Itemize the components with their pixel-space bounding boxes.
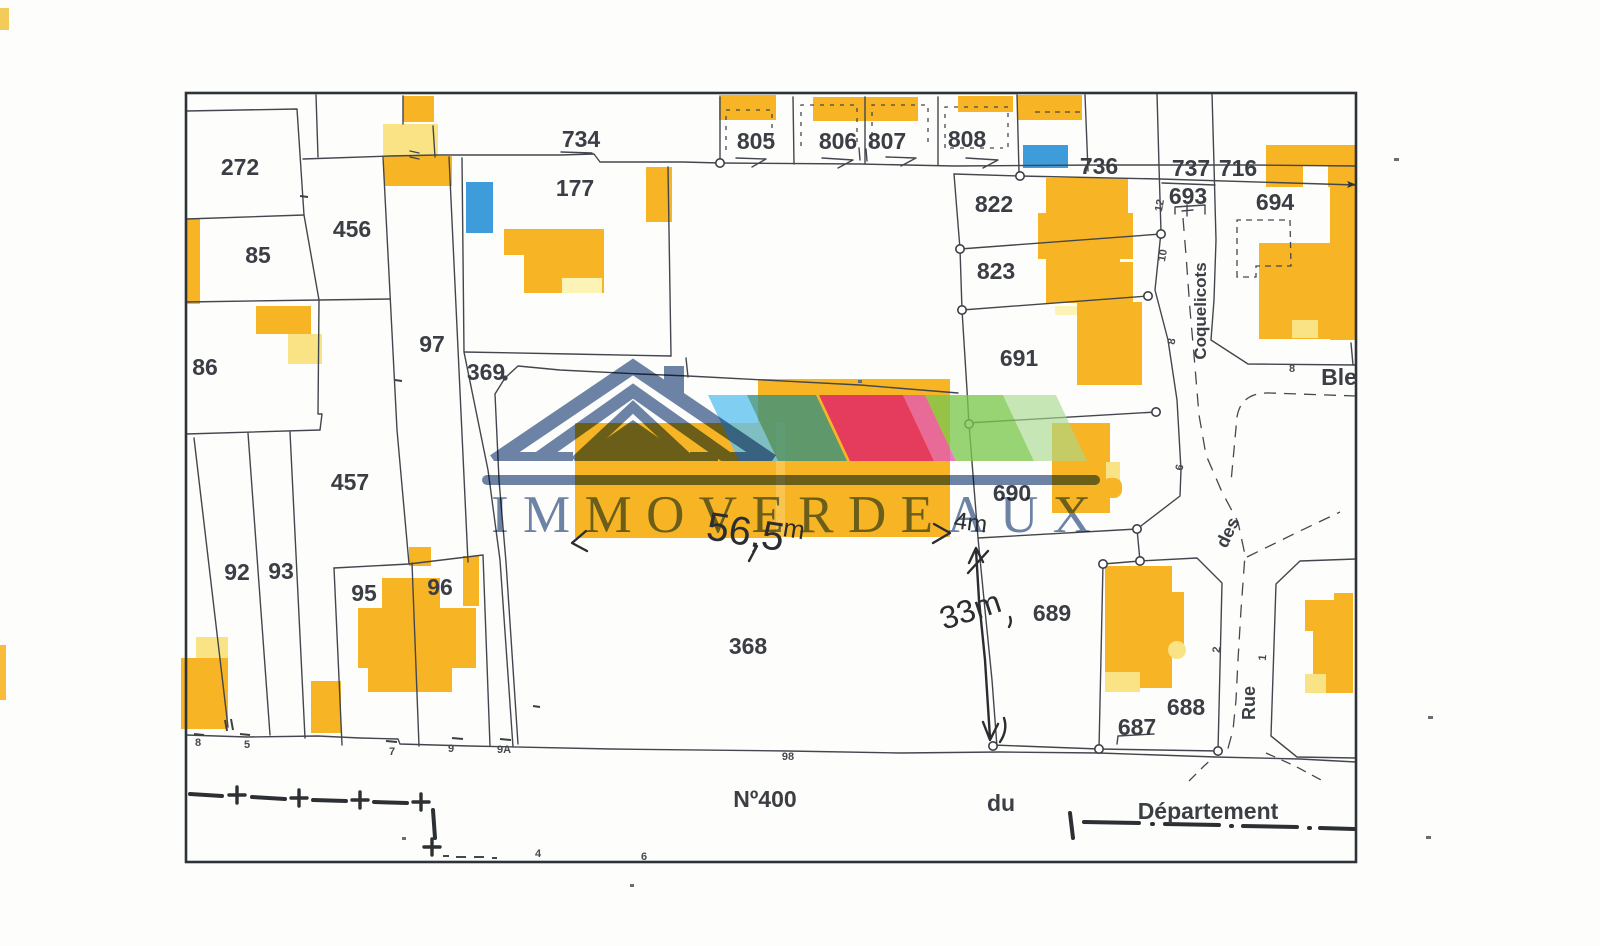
- svg-text:368: 368: [729, 633, 768, 659]
- svg-text:689: 689: [1033, 600, 1071, 626]
- svg-text:86: 86: [192, 354, 218, 380]
- svg-text:691: 691: [1000, 345, 1039, 371]
- svg-text:93: 93: [268, 558, 294, 584]
- svg-text:805: 805: [737, 128, 776, 154]
- svg-text:85: 85: [245, 242, 271, 268]
- svg-text:Coquelicots: Coquelicots: [1191, 262, 1210, 359]
- svg-text:96: 96: [427, 574, 453, 600]
- svg-text:5: 5: [244, 739, 250, 751]
- svg-text:716: 716: [1219, 155, 1257, 181]
- svg-text:4: 4: [535, 848, 542, 860]
- svg-text:Nº400: Nº400: [733, 786, 796, 812]
- svg-text:822: 822: [975, 191, 1013, 217]
- svg-text:688: 688: [1167, 694, 1206, 720]
- svg-text:734: 734: [562, 126, 601, 152]
- svg-text:Rue: Rue: [1239, 686, 1259, 720]
- svg-text:457: 457: [331, 469, 369, 495]
- svg-text:808: 808: [948, 126, 987, 152]
- svg-text:92: 92: [224, 559, 250, 585]
- svg-text:Département: Département: [1138, 798, 1279, 824]
- svg-text:m: m: [781, 512, 807, 545]
- svg-text:Ble: Ble: [1321, 364, 1357, 390]
- svg-text:98: 98: [782, 751, 794, 763]
- svg-text:369: 369: [467, 359, 505, 385]
- svg-text:9A: 9A: [497, 744, 511, 756]
- svg-text:694: 694: [1256, 189, 1295, 215]
- svg-text:8: 8: [1289, 363, 1295, 375]
- svg-text:2: 2: [1211, 646, 1223, 653]
- svg-text:1: 1: [1257, 654, 1269, 661]
- svg-text:806: 806: [819, 128, 857, 154]
- svg-text:687: 687: [1118, 714, 1156, 740]
- svg-text:10: 10: [1156, 248, 1170, 262]
- svg-text:95: 95: [351, 580, 377, 606]
- svg-text:823: 823: [977, 258, 1015, 284]
- svg-text:4m: 4m: [952, 507, 989, 538]
- svg-text:177: 177: [556, 175, 594, 201]
- svg-text:12: 12: [1153, 198, 1167, 212]
- svg-text:9: 9: [448, 743, 454, 755]
- svg-text:6: 6: [641, 851, 647, 863]
- svg-text:456: 456: [333, 216, 371, 242]
- svg-text:737: 737: [1172, 155, 1210, 181]
- svg-text:8: 8: [195, 737, 201, 749]
- svg-text:736: 736: [1080, 153, 1118, 179]
- svg-text:693: 693: [1169, 183, 1207, 209]
- svg-text:807: 807: [868, 128, 906, 154]
- svg-text:7: 7: [389, 746, 395, 758]
- svg-text:272: 272: [221, 154, 259, 180]
- svg-text:97: 97: [419, 331, 445, 357]
- svg-text:du: du: [987, 790, 1015, 816]
